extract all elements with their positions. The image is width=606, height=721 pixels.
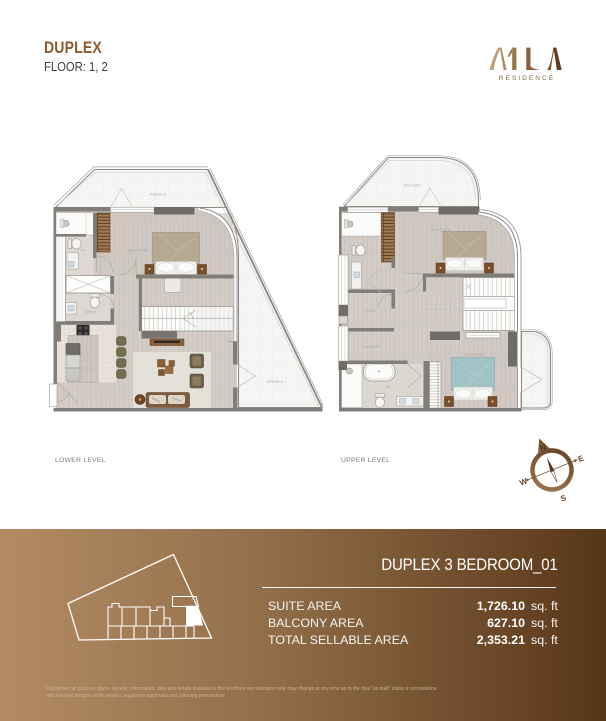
svg-text:BED ROOM: BED ROOM [128,249,148,253]
svg-text:S: S [559,493,568,504]
svg-text:WC: WC [386,385,392,389]
svg-text:E: E [577,453,586,464]
svg-text:W: W [518,476,529,487]
svg-text:TOILET: TOILET [85,311,96,315]
svg-text:KITCHEN: KITCHEN [77,367,93,371]
svg-text:TERRACE: TERRACE [266,380,284,384]
svg-text:BED ROOM: BED ROOM [431,228,451,232]
svg-text:LAUNDRY: LAUNDRY [364,345,381,349]
svg-text:STAIRS: STAIRS [364,309,375,313]
svg-text:BALCONY: BALCONY [404,184,422,188]
svg-text:BED ROOM: BED ROOM [464,353,484,357]
svg-text:TERRACE: TERRACE [149,193,167,197]
svg-text:TLT: TLT [80,249,85,253]
